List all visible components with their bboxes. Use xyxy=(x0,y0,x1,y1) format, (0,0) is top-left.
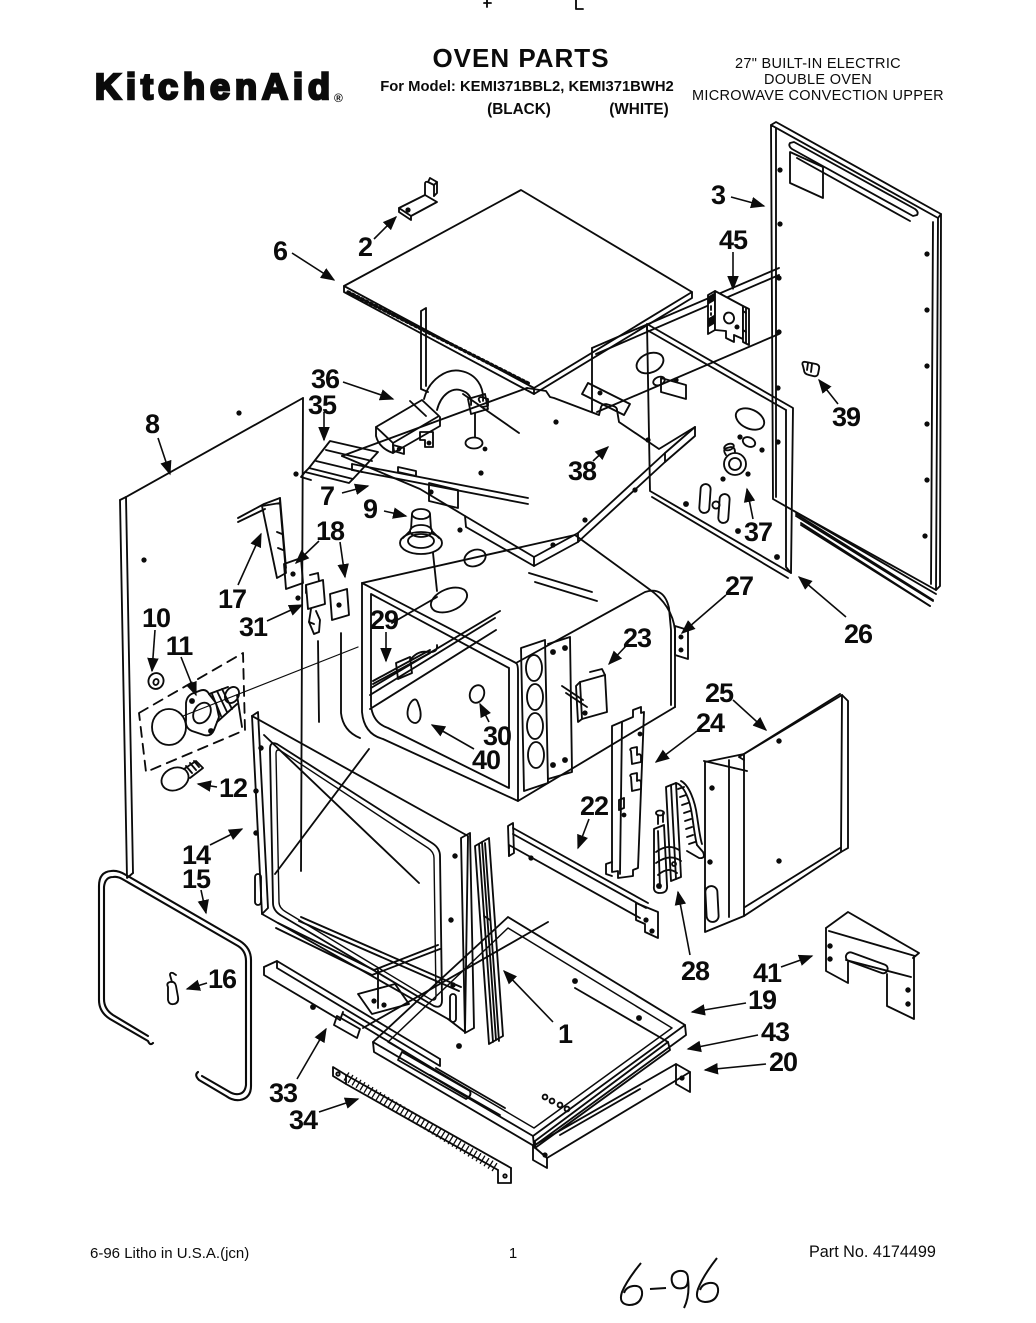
svg-text:1: 1 xyxy=(558,1019,573,1049)
svg-text:24: 24 xyxy=(696,708,725,738)
svg-text:7: 7 xyxy=(320,481,334,511)
svg-text:35: 35 xyxy=(308,390,337,420)
svg-text:1: 1 xyxy=(509,1245,517,1262)
svg-text:(WHITE): (WHITE) xyxy=(609,101,668,118)
svg-text:45: 45 xyxy=(719,225,748,255)
svg-text:6: 6 xyxy=(273,236,288,266)
svg-text:20: 20 xyxy=(769,1047,797,1077)
svg-text:25: 25 xyxy=(705,678,734,708)
svg-text:2: 2 xyxy=(358,232,372,262)
svg-text:31: 31 xyxy=(239,612,268,642)
svg-text:40: 40 xyxy=(472,745,500,775)
svg-text:(BLACK): (BLACK) xyxy=(487,101,551,118)
svg-text:9: 9 xyxy=(363,494,378,524)
svg-text:26: 26 xyxy=(844,619,873,649)
svg-text:38: 38 xyxy=(568,456,597,486)
svg-text:41: 41 xyxy=(753,958,782,988)
svg-text:28: 28 xyxy=(681,956,710,986)
svg-text:27" BUILT-IN ELECTRIC: 27" BUILT-IN ELECTRIC xyxy=(735,56,901,72)
svg-text:43: 43 xyxy=(761,1017,790,1047)
svg-text:37: 37 xyxy=(744,517,772,547)
svg-text:11: 11 xyxy=(166,631,194,661)
svg-text:23: 23 xyxy=(623,623,652,653)
svg-text:27: 27 xyxy=(725,571,753,601)
svg-text:18: 18 xyxy=(316,516,345,546)
svg-text:39: 39 xyxy=(832,402,861,432)
svg-text:22: 22 xyxy=(580,791,608,821)
svg-text:For Model: KEMI371BBL2, KEMI37: For Model: KEMI371BBL2, KEMI371BWH2 xyxy=(380,79,674,95)
svg-text:®: ® xyxy=(334,91,343,105)
svg-text:6-96 Litho in U.S.A.(jcn): 6-96 Litho in U.S.A.(jcn) xyxy=(90,1245,249,1262)
svg-text:OVEN PARTS: OVEN PARTS xyxy=(432,43,609,73)
svg-text:29: 29 xyxy=(370,605,399,635)
svg-text:KitchenAid: KitchenAid xyxy=(95,66,335,107)
svg-text:15: 15 xyxy=(182,864,211,894)
svg-text:19: 19 xyxy=(748,985,777,1015)
svg-text:Part No. 4174499: Part No. 4174499 xyxy=(809,1243,936,1261)
svg-text:12: 12 xyxy=(219,773,247,803)
svg-text:3: 3 xyxy=(711,180,726,210)
svg-text:8: 8 xyxy=(145,409,160,439)
svg-text:10: 10 xyxy=(142,603,170,633)
svg-text:34: 34 xyxy=(289,1105,318,1135)
svg-text:33: 33 xyxy=(269,1078,298,1108)
svg-text:DOUBLE OVEN: DOUBLE OVEN xyxy=(764,72,872,88)
svg-text:MICROWAVE CONVECTION UPPER: MICROWAVE CONVECTION UPPER xyxy=(692,88,944,104)
svg-text:17: 17 xyxy=(218,584,246,614)
svg-text:16: 16 xyxy=(208,964,237,994)
